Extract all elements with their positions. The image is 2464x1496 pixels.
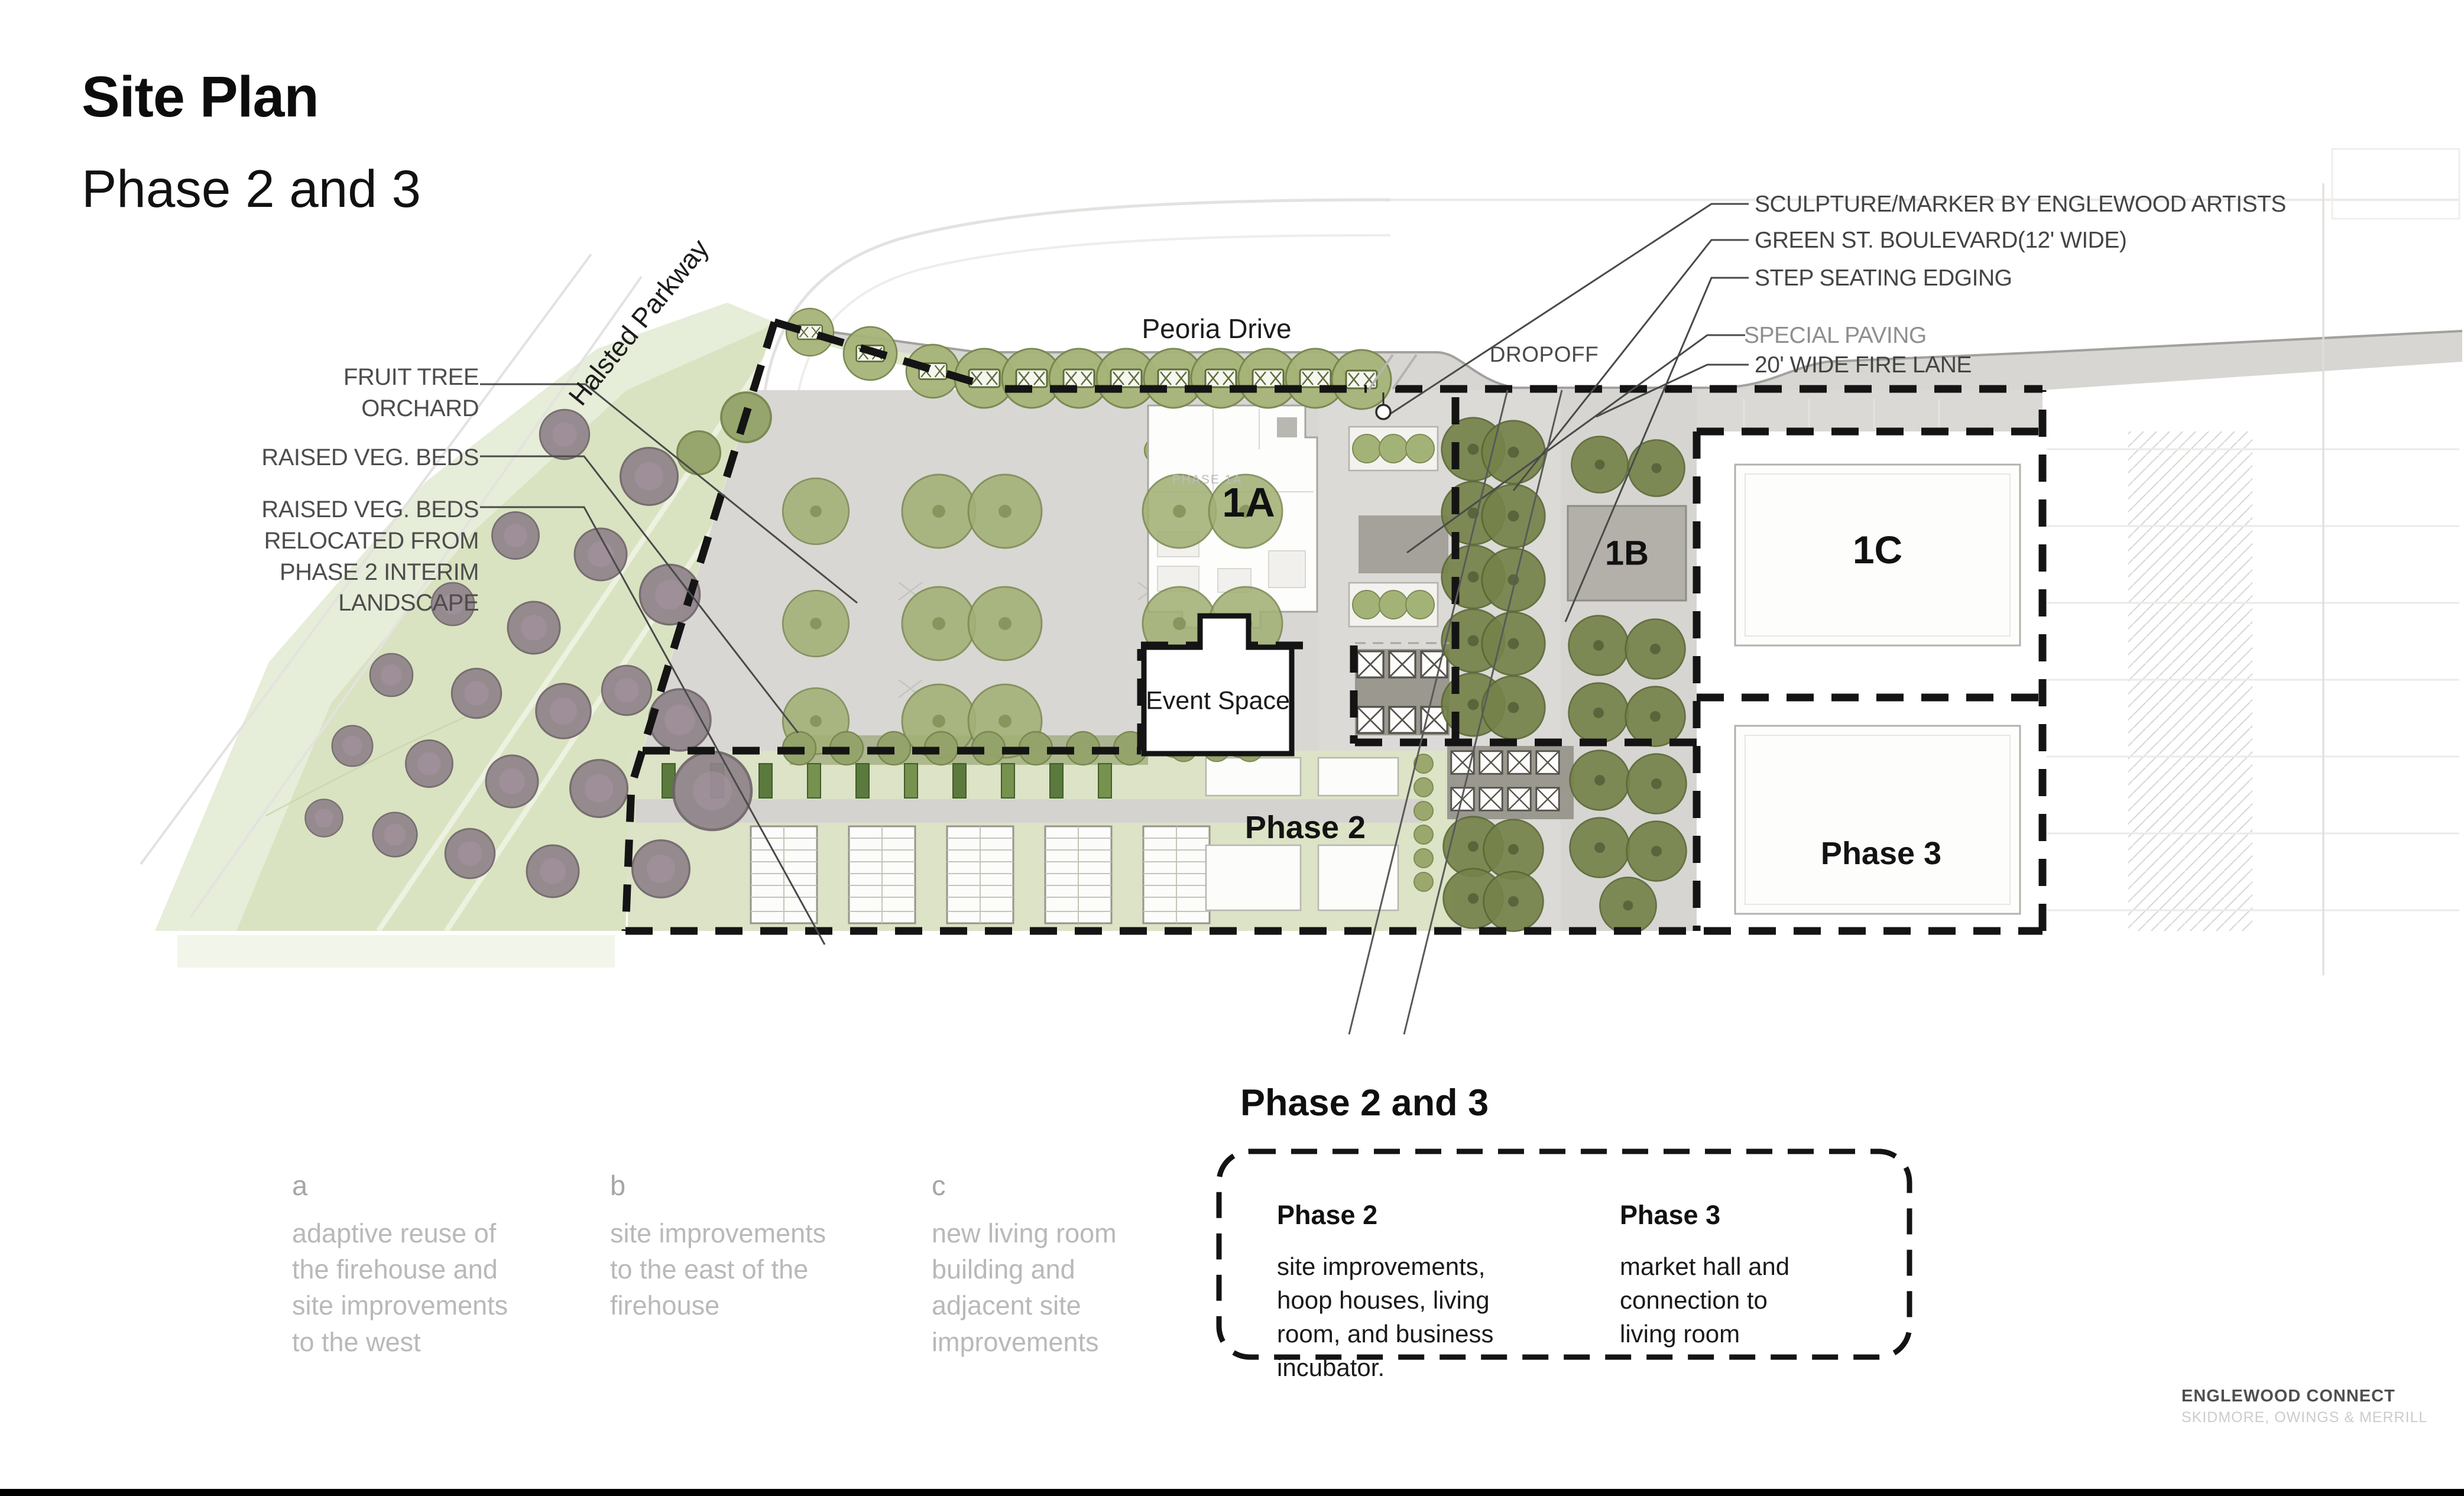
phase2-area-label: Phase 2 [1245, 809, 1366, 846]
legend-key-b: b [610, 1169, 625, 1202]
building-1c-label: 1C [1853, 527, 1902, 572]
phase3-pad [1735, 726, 2020, 914]
callout-step-seating-edging: STEP SEATING EDGING [1755, 267, 2012, 290]
phase3-area-label: Phase 3 [1821, 835, 1941, 872]
callout-special-paving: SPECIAL PAVING [1744, 324, 1927, 347]
dropoff-label: DROPOFF [1490, 342, 1599, 367]
bottom-edge-bar [0, 1489, 2464, 1496]
callout-fire-lane: 20' WIDE FIRE LANE [1755, 353, 1972, 377]
legend-text-c: new living room building and adjacent si… [932, 1215, 1117, 1360]
page-title: Site Plan [82, 67, 421, 127]
callout-raised-veg-beds-relocated: RAISED VEG. BEDS RELOCATED FROM PHASE 2 … [177, 494, 479, 619]
legend-key-a: a [292, 1169, 307, 1202]
slide-canvas: Site Plan Phase 2 and 3 FRUIT TREE ORCHA… [0, 0, 2464, 1496]
phase-box-phase3-title: Phase 3 [1620, 1200, 1892, 1231]
phase-box-phase3-column: Phase 3 market hall and connection to li… [1620, 1189, 1892, 1361]
phase-box-phase2-text: site improvements, hoop houses, living r… [1277, 1250, 1608, 1384]
building-1b-label: 1B [1605, 534, 1649, 573]
callout-sculpture-marker: SCULPTURE/MARKER BY ENGLEWOOD ARTISTS [1755, 193, 2286, 216]
callout-green-st-boulevard: GREEN ST. BOULEVARD(12' WIDE) [1755, 229, 2126, 252]
callout-raised-veg-beds: RAISED VEG. BEDS [177, 442, 479, 473]
footer-project-name: ENGLEWOOD CONNECT [2181, 1387, 2395, 1406]
slide-title-block: Site Plan Phase 2 and 3 [82, 57, 421, 226]
building-1a-label: 1A [1222, 479, 1275, 526]
phase-box-heading: Phase 2 and 3 [1240, 1082, 1489, 1124]
street-label-peoria-drive: Peoria Drive [1142, 313, 1291, 345]
callout-fruit-tree-orchard: FRUIT TREE ORCHARD [213, 362, 479, 424]
page-subtitle: Phase 2 and 3 [82, 161, 421, 216]
footer-firm-name: SKIDMORE, OWINGS & MERRILL [2181, 1409, 2427, 1426]
phase-box-phase2-title: Phase 2 [1277, 1200, 1608, 1231]
planter-grid-a [1355, 649, 1450, 735]
legend-key-c: c [932, 1169, 946, 1202]
phase-box-phase2-column: Phase 2 site improvements, hoop houses, … [1277, 1189, 1608, 1395]
phase-box-phase3-text: market hall and connection to living roo… [1620, 1250, 1892, 1351]
legend-text-b: site improvements to the east of the fir… [610, 1215, 826, 1324]
legend-text-a: adaptive reuse of the firehouse and site… [292, 1215, 508, 1360]
event-space-label: Event Space [1146, 687, 1290, 716]
